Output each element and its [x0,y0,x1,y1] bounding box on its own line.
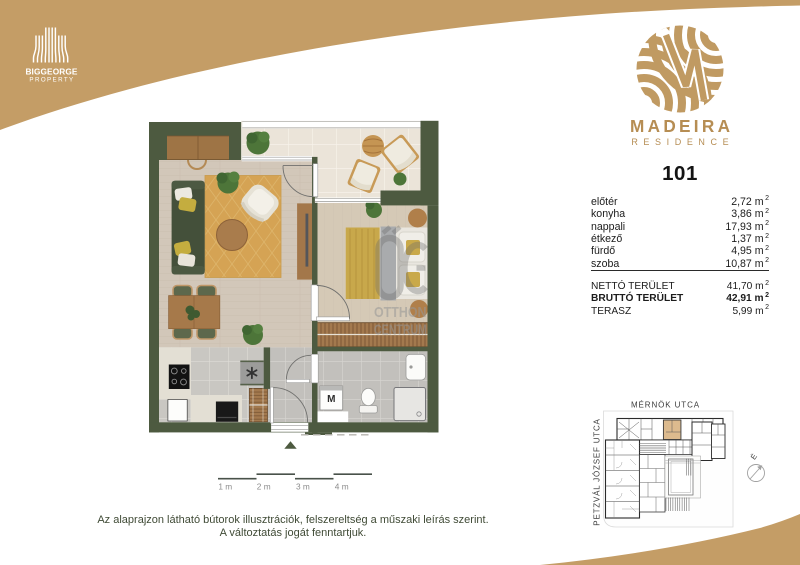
svg-text:É: É [749,452,759,461]
svg-text:PROPERTY: PROPERTY [29,77,74,84]
svg-text:OTTHON: OTTHON [374,304,427,321]
svg-text:MÉRNÖK UTCA: MÉRNÖK UTCA [631,401,700,410]
svg-text:CENTRUM: CENTRUM [374,322,427,339]
svg-text:1 m: 1 m [218,482,232,492]
svg-text:2 m: 2 m [257,482,271,492]
svg-text:4 m: 4 m [335,482,349,492]
svg-text:M: M [327,394,335,405]
svg-text:BIGGEORGE: BIGGEORGE [25,66,77,76]
svg-text:3 m: 3 m [296,482,310,492]
